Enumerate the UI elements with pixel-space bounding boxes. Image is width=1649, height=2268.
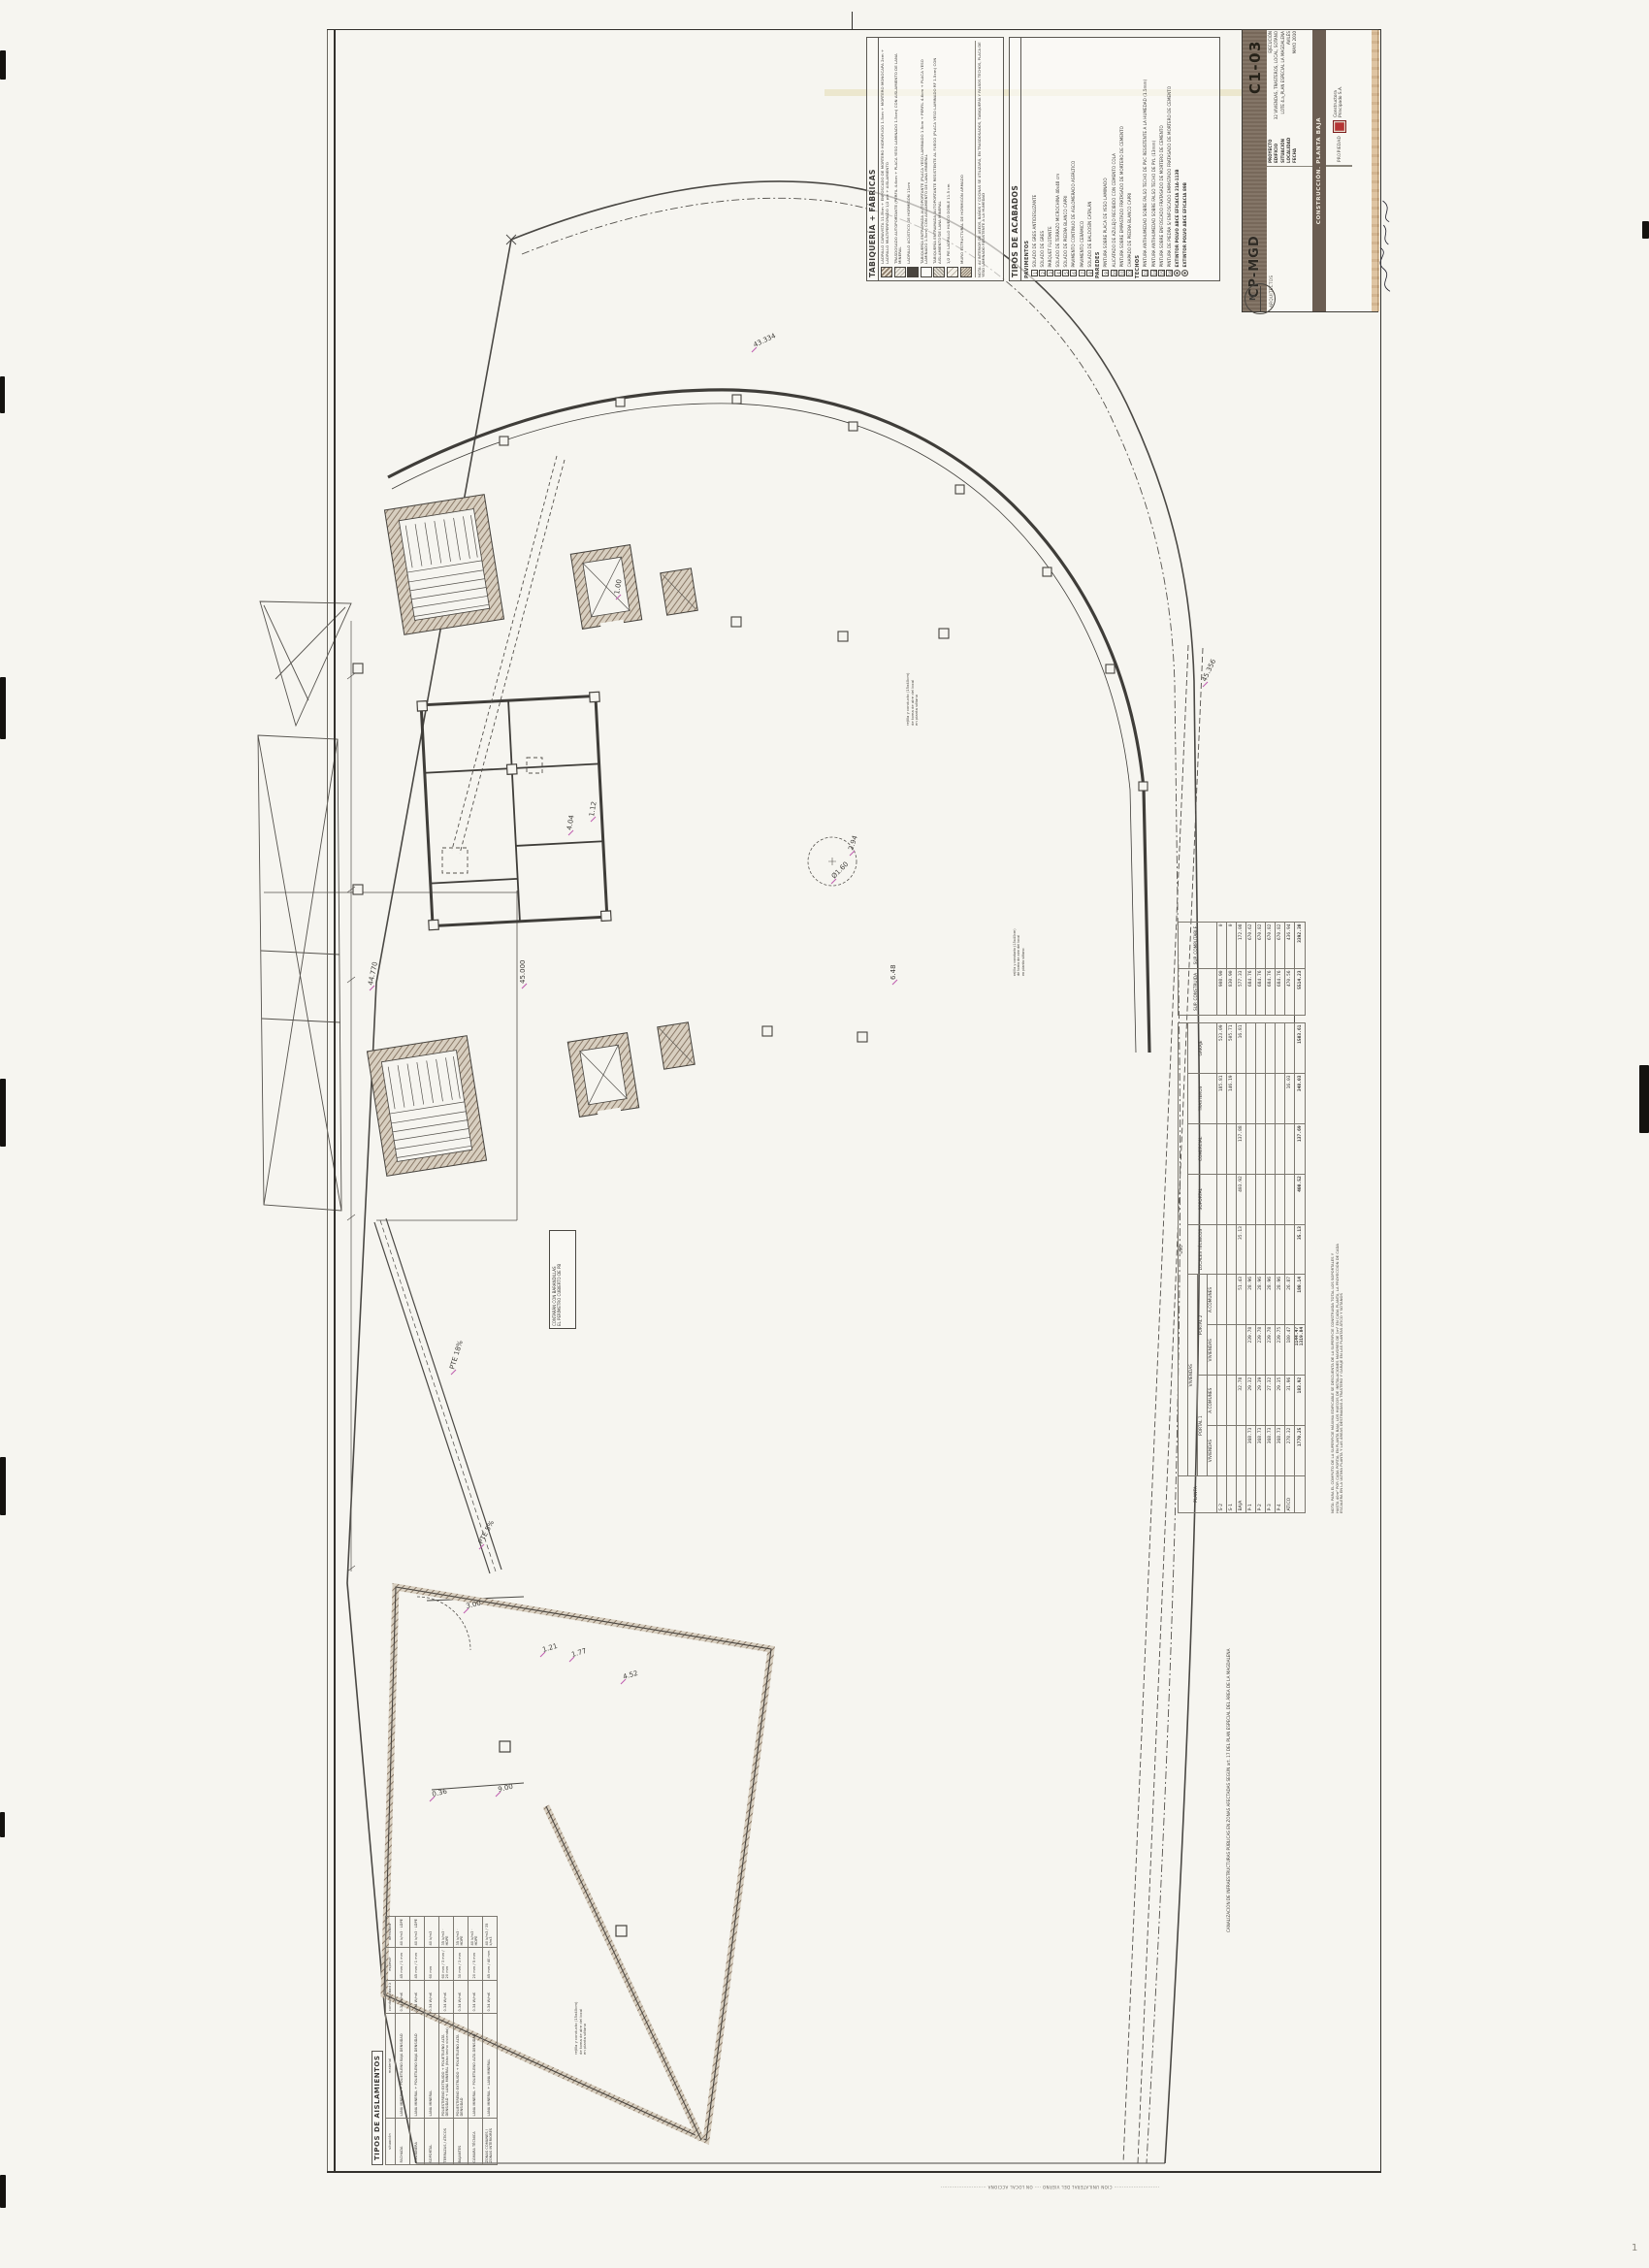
value-cell: 180.47	[1285, 1325, 1295, 1376]
finish-item: 13PINTURA ANTIHUMEDAD SOBRE FALSO TECHO …	[1142, 38, 1148, 276]
value-cell: 28.96	[1276, 1275, 1285, 1325]
value-cell: MEDIANERA	[410, 2119, 425, 2165]
comput-cell: 670.82	[1266, 923, 1276, 969]
frame-left-inner	[334, 29, 336, 2173]
finish-item: 6PAVIMENTO CONTINUO DE AGLOMERADO ASFÁLT…	[1070, 38, 1077, 276]
legend-item: LADRILLO CARAVISTA 11.5cm + ENFOSCADO DE…	[881, 41, 892, 277]
value-cell: 1503.61	[1295, 1023, 1306, 1074]
value-cell: 35 k/m3 · HDPE	[439, 1917, 454, 1948]
comput-cell: 3392.30	[1295, 923, 1306, 969]
value-cell: 45 mm / 1 mm	[396, 1948, 410, 1981]
dim-label: 45.000	[519, 960, 527, 985]
value-cell: 45 mm / 1 mm	[410, 1948, 425, 1981]
value-cell: 28.96	[1256, 1275, 1266, 1325]
finish-item-number: 12	[1126, 270, 1133, 276]
planta-cell: P-4	[1276, 1476, 1285, 1513]
legend-item: 1/2 PIE LADRILLO HUECO DOBLE 11.5 cm	[947, 41, 958, 277]
superficies-body: S-2185.81523.09908.900S-1146.19505.71830…	[1217, 923, 1306, 1513]
value-cell: 137.88	[1237, 1123, 1246, 1174]
dim-label: 2.94	[847, 834, 859, 852]
col-viviendas: VIVIENDAS	[1188, 1275, 1198, 1476]
value-cell: LANA MINERAL	[425, 2014, 439, 2119]
value-cell	[1217, 1325, 1227, 1376]
col-situacion: situación	[386, 2119, 396, 2165]
value-cell: FACHADA	[396, 2119, 410, 2165]
grille-note-2: rejilla y conducto (15x40cm) de toma de …	[1013, 922, 1026, 976]
value-cell: 40 k/m3 · HDPE	[469, 1917, 483, 1948]
legend-item-text: MURO ESTRUCTURAL DE HORMIGÓN ARMADO	[960, 175, 965, 264]
col-planta: PLANTA	[1179, 1476, 1217, 1513]
site-boundary	[347, 181, 1200, 2163]
table-row: P-3368.7327.32239.7828.96684.76670.82	[1266, 923, 1276, 1513]
value-cell	[1285, 1023, 1295, 1074]
col-uso: USO	[1179, 1023, 1188, 1476]
constr-cell: 684.76	[1246, 969, 1256, 1016]
col-sup-computable: SUP. COMPUTABLE	[1179, 923, 1217, 969]
value-cell	[1237, 1325, 1246, 1376]
finish-item: 2SOLADO DE GRES	[1039, 38, 1046, 276]
legend-item: LADRILLO ACÚSTICO DE HORMIGÓN 11cm	[907, 41, 919, 277]
finish-item-text: ALICATADO DE AZULEJO RECIBIDO CON CEMENT…	[1112, 153, 1116, 267]
table-gap	[1256, 1016, 1266, 1023]
value-cell: 30 mm / 3 mm	[454, 1948, 469, 1981]
finish-item-text: PARQUET FLOTANTE	[1048, 226, 1052, 267]
dim-label: 1.21	[541, 1642, 558, 1654]
elevator-2	[567, 1033, 639, 1119]
table-row: TERRAZAS / ÁTICOSPOLIESTIRENO EXTRUIDO +…	[439, 1917, 454, 2165]
planta-cell: ATICO	[1285, 1476, 1295, 1513]
value-cell	[1227, 1224, 1237, 1275]
value-cell: 45 mm / 40 mm	[483, 1948, 498, 1981]
col-garaje: GARAJE	[1188, 1023, 1217, 1074]
finish-item-number: 4	[1054, 270, 1061, 276]
value-cell: 40 k/m3	[425, 1917, 439, 1948]
scanned-plan-sheet: { "sheet": { "project_code": "CP-MGD", "…	[0, 0, 1649, 2268]
comput-cell: 0	[1227, 923, 1237, 969]
value-cell	[1256, 1123, 1266, 1174]
finish-item: 3PARQUET FLOTANTE	[1047, 38, 1053, 276]
finish-item-number: 15	[1158, 270, 1165, 276]
value-cell	[1285, 1123, 1295, 1174]
extinguisher-icon	[1174, 270, 1180, 276]
legend-item: TRASDOSADO AUTOPORTANTE (PERFIL 4.6cm + …	[894, 41, 906, 277]
finish-item-number: 9	[1102, 270, 1109, 276]
value-cell	[1227, 1275, 1237, 1325]
value-cell	[1227, 1426, 1237, 1476]
finish-item-number: 8	[1086, 270, 1093, 276]
vent-shaft-2	[658, 1022, 695, 1069]
hatch-swatch	[881, 267, 892, 277]
finish-item-number: 16	[1166, 270, 1173, 276]
comput-cell: 172.08	[1237, 923, 1246, 969]
value-cell	[1276, 1123, 1285, 1174]
dim-label: 45.356	[1201, 658, 1218, 683]
frame-tick	[852, 12, 853, 29]
finish-item-number: 1	[1031, 270, 1038, 276]
value-cell: 523.09	[1217, 1023, 1227, 1074]
value-cell: 29.32	[1246, 1376, 1256, 1426]
finish-item-text: PINTURA ANTIHUMEDAD SOBRE FALSO TECHO DE…	[1143, 80, 1148, 268]
value-cell: 137.69	[1295, 1123, 1306, 1174]
planta-cell: S-2	[1217, 1476, 1227, 1513]
col-portal2: PORTAL 2	[1198, 1275, 1208, 1376]
table-row: S-2185.81523.09908.900	[1217, 923, 1227, 1513]
value-cell: 278.32	[1285, 1426, 1295, 1476]
value-cell	[1256, 1074, 1266, 1124]
value-cell	[1246, 1224, 1256, 1275]
value-cell	[1237, 1426, 1246, 1476]
comput-cell: 670.62	[1246, 923, 1256, 969]
finish-item-text: PINTURA ANTIHUMEDAD SOBRE FALSO TECHO DE…	[1151, 141, 1156, 268]
planta-cell: S-1	[1227, 1476, 1237, 1513]
legend-item: TABIQUERÍA ENTRAMADA AUTOPORTANTE RESIST…	[933, 41, 945, 277]
value-cell: TERRAZAS / ÁTICOS	[439, 2119, 454, 2165]
highlight-band	[1372, 30, 1379, 311]
table-row: S-1146.19505.71830.900	[1227, 923, 1237, 1513]
technical-rooms-block	[417, 692, 611, 930]
comput-cell: 0	[1217, 923, 1227, 969]
finish-item-text: PAVIMENTO CONTINUO DE AGLOMERADO ASFÁLTI…	[1071, 161, 1076, 268]
title-block: CP-MGD C1-03 ARQUITECTOS PROYECTOEJECUCI…	[1242, 29, 1378, 312]
col-p1-comunes: A.COMUNES	[1208, 1376, 1217, 1426]
value-cell: 368.73	[1276, 1426, 1285, 1476]
col-densidad: densidad	[386, 1917, 396, 1948]
hatch-swatch	[894, 267, 906, 277]
legend-item-text: TRASDOSADO AUTOPORTANTE (PERFIL 4.6cm + …	[894, 41, 903, 264]
value-cell: ZONAS COMUNES / ZONAS INTERIORES	[483, 2119, 498, 2165]
owner-name: Constructora Principado S.A.	[1335, 86, 1344, 117]
value-cell	[1237, 1074, 1246, 1124]
value-cell: 32.78	[1237, 1376, 1246, 1426]
value-cell	[1227, 1325, 1237, 1376]
value-cell	[1217, 1426, 1227, 1476]
value-cell	[1217, 1275, 1227, 1325]
value-cell	[1276, 1224, 1285, 1275]
value-cell: 29.39	[1256, 1376, 1266, 1426]
value-cell: 239.78	[1256, 1325, 1266, 1376]
inverted-margin-note: ···························· CIÓN UNILAT…	[538, 2185, 1159, 2189]
value-cell: 348.03	[1295, 1074, 1306, 1124]
table-gap	[1285, 1016, 1295, 1023]
value-cell: 239.75	[1276, 1325, 1285, 1376]
value-cell: 0.34 W/mK	[454, 1981, 469, 2014]
vent-shaft-1	[661, 568, 697, 615]
finish-item: 4SOLADO DE TERRAZO MICROCHINA 40x40 cm	[1054, 38, 1061, 276]
dimension-chain	[347, 621, 355, 1571]
finish-item-number: 13	[1142, 270, 1148, 276]
value-cell: 1144.47 1319.84	[1295, 1325, 1306, 1376]
table-gap	[1179, 1016, 1217, 1023]
finish-item-text: CHAPADO DE PIEDRA BLANCO CAPRI	[1127, 193, 1132, 268]
extinguisher-icon	[1181, 270, 1188, 276]
elevator-1	[570, 545, 642, 632]
north-arrow: N	[1245, 283, 1276, 314]
table-gap	[1295, 1016, 1306, 1023]
constructora-logo-icon	[1333, 120, 1346, 133]
value-cell: 20 mm / 5 mm	[469, 1948, 483, 1981]
stair-core-1	[384, 495, 503, 635]
architects-cell: ARQUITECTOS	[1267, 166, 1352, 311]
dim-label: 4.04	[566, 814, 576, 830]
value-cell: 1770.25	[1295, 1426, 1306, 1476]
value-cell: CÁMARA TÉCNICA	[469, 2119, 483, 2165]
table-gap	[1246, 1016, 1256, 1023]
value-cell	[1246, 1074, 1256, 1124]
finish-item: 1SOLADO DE GRES ANTIDESLIZANTE	[1031, 38, 1038, 276]
areas-table-wrap: PLANTA USO SUP. CONSTRUIDA SUP. COMPUTAB…	[1178, 922, 1325, 1513]
value-cell	[1266, 1074, 1276, 1124]
finish-item-text: PINTURA SOBRE ENFOSCADO FRATASADO DE MOR…	[1159, 125, 1164, 267]
tabiqueria-items: LADRILLO CARAVISTA 11.5cm + ENFOSCADO DE…	[879, 38, 975, 280]
legend-tabiqueria-note: NOTA: AL INTERIOR DE ASEOS, BAÑOS Y COCI…	[975, 41, 986, 277]
left-canopy-triangle	[260, 601, 351, 726]
constr-cell: 684.76	[1266, 969, 1276, 1016]
value-cell: 16.81	[1237, 1023, 1246, 1074]
value-cell	[1217, 1174, 1227, 1224]
value-cell: 60 mm	[425, 1948, 439, 1981]
scan-artifact	[0, 50, 6, 80]
dim-label: 43.334	[752, 332, 777, 349]
table-row: P-4368.7329.35239.7528.96684.76670.82	[1276, 923, 1285, 1513]
finish-item: 7PAVIMENTO CERÁMICO	[1079, 38, 1085, 276]
value-cell	[1217, 1224, 1227, 1275]
dim-label: Ø1.60	[830, 860, 851, 881]
value-cell	[1266, 1023, 1276, 1074]
table-row: BAJANTESPOLIESTIRENO EXTRUIDO + POLIETIL…	[454, 1917, 469, 2165]
value-cell	[1227, 1376, 1237, 1426]
table-gap	[1276, 1016, 1285, 1023]
stair-core-2	[367, 1036, 486, 1177]
finish-item: 11PINTURA SOBRE EMPASTADO FRATASADO DE M…	[1118, 38, 1125, 276]
grille-note-3: rejilla y conducto (15x40cm) de toma de …	[574, 1981, 588, 2055]
floor-plan-drawing: 43.33445.35644.77045.0004.042.94Ø1.606.4…	[0, 0, 1649, 2268]
col-locales: LOCALES TÉCNICOS	[1188, 1224, 1217, 1275]
scan-artifact	[0, 1812, 5, 1837]
finish-item-text: PINTURA SOBRE PLACA DE YESO LAMINADO	[1103, 178, 1108, 267]
legend-acabados-title: TIPOS DE ACABADOS	[1010, 38, 1021, 280]
legend-tabiqueria-title: TABIQUERÍA + FÁBRICAS	[867, 38, 879, 280]
scan-artifact	[1639, 1065, 1649, 1133]
hatch-swatch	[921, 267, 932, 277]
title-band: CP-MGD C1-03	[1243, 30, 1267, 311]
value-cell: SOPORTAL	[425, 2119, 439, 2165]
table-row: 1770.25183.921144.47 1319.84180.1435.134…	[1295, 923, 1306, 1513]
superficies-table: PLANTA USO SUP. CONSTRUIDA SUP. COMPUTAB…	[1178, 922, 1306, 1513]
planta-cell	[1295, 1476, 1306, 1513]
col-trasteros: TRASTEROS	[1188, 1074, 1217, 1124]
planta-cell: BAJA	[1237, 1476, 1246, 1513]
value-cell: 28.96	[1266, 1275, 1276, 1325]
owner-label: PROPIEDAD	[1337, 136, 1342, 162]
table-gap	[1237, 1016, 1246, 1023]
value-cell: 40 k/m3 / 35 k/m3	[483, 1917, 498, 1948]
table-row: ZONAS COMUNES / ZONAS INTERIORESLANA MIN…	[483, 1917, 498, 2165]
col-soportal: SOPORTAL	[1188, 1174, 1217, 1224]
value-cell: 0.34 W/mK	[396, 1981, 410, 2014]
col-p2-viviendas: VIVIENDAS	[1208, 1325, 1217, 1376]
infrastructure-note: CANALIZACIÓN DE INFRAESTRUCTURAS PÚBLICA…	[1226, 1601, 1245, 1932]
finish-group-title: PAVIMENTOS	[1024, 38, 1030, 278]
hatch-swatch	[960, 267, 972, 277]
value-cell: 26.87	[1285, 1275, 1295, 1325]
finish-item: 14PINTURA ANTIHUMEDAD SOBRE FALSO TECHO …	[1150, 38, 1157, 276]
value-cell	[1285, 1174, 1295, 1224]
value-cell: LANA MINERAL + POLIETILENO BAJA DENSIDAD	[410, 2014, 425, 2119]
value-cell: 185.81	[1217, 1074, 1227, 1124]
value-cell: 35.13	[1237, 1224, 1246, 1275]
left-braced-strip	[258, 735, 341, 1211]
value-cell: 35.13	[1295, 1224, 1306, 1275]
table-row: P-1368.7329.32239.7828.96684.76670.62	[1246, 923, 1256, 1513]
building-wall	[388, 390, 1149, 1053]
value-cell: LANA MINERAL + LANA MINERAL	[483, 2014, 498, 2119]
value-cell: 183.92	[1295, 1376, 1306, 1426]
value-cell	[1266, 1224, 1276, 1275]
value-cell	[1227, 1123, 1237, 1174]
finish-item-text: SOLADO DE PIEDRA BLANCO CAPRI	[1063, 196, 1068, 268]
value-cell	[1256, 1023, 1266, 1074]
north-needle	[1260, 286, 1261, 311]
finish-item: 10ALICATADO DE AZULEJO RECIBIDO CON CEME…	[1111, 38, 1117, 276]
value-cell: 27.32	[1266, 1376, 1276, 1426]
scan-artifact	[0, 2175, 6, 2208]
finish-item-text: PINTURA DE PIEDRA S/ ENFOSCADO EMPASTADO…	[1167, 86, 1172, 268]
hatch-swatch	[947, 267, 958, 277]
table-row: CÁMARA TÉCNICALANA MINERAL + POLIETILENO…	[469, 1917, 483, 2165]
table-row: BAJA32.7851.4335.13403.92137.8816.81577.…	[1237, 923, 1246, 1513]
finish-item-number: 7	[1079, 270, 1085, 276]
scan-artifact	[0, 677, 6, 739]
finish-item-text: SOLADO DE GRES	[1040, 231, 1045, 268]
value-cell: 180.14	[1295, 1275, 1306, 1325]
col-sup-construida: SUP. CONSTRUIDA	[1179, 969, 1217, 1016]
legend-item-text: TABIQUERÍA ENTRAMADA AUTOPORTANTE RESIST…	[933, 41, 942, 264]
finish-item-text: SOLADO DE BALDOSÍN CATALÁN	[1087, 201, 1092, 267]
field-row: FECHAMAYO 2010	[1292, 31, 1298, 163]
dim-label: 6.48	[889, 964, 897, 980]
hatch-swatch	[907, 267, 919, 277]
railing-note: CONTARÁN CON BARANDILLAS EL PERÍMETRO CU…	[549, 1230, 576, 1329]
value-cell: 29.35	[1276, 1376, 1285, 1426]
finish-item: 8SOLADO DE BALDOSÍN CATALÁN	[1086, 38, 1093, 276]
constr-cell: 908.90	[1217, 969, 1227, 1016]
table-gap	[1217, 1016, 1227, 1023]
constr-cell: 470.56	[1285, 969, 1295, 1016]
setback-dashed-lines	[522, 198, 1203, 2163]
finish-item-number: 6	[1070, 270, 1077, 276]
finish-item-number: 10	[1111, 270, 1117, 276]
scan-artifact	[0, 1457, 6, 1515]
finish-item-text: SOLADO DE GRES ANTIDESLIZANTE	[1032, 195, 1037, 268]
finish-group-title: PAREDES	[1095, 38, 1101, 278]
value-cell: 60 mm / 3 mm / 20 mm	[439, 1948, 454, 1981]
project-fields: PROYECTOEJECUCIÓN EDIFICIO32 VIVIENDAS, …	[1267, 28, 1312, 166]
legend-item: MURO ESTRUCTURAL DE HORMIGÓN ARMADO	[960, 41, 972, 277]
value-cell	[1246, 1023, 1256, 1074]
constr-cell: 684.76	[1256, 969, 1266, 1016]
dim-label: 4.52	[622, 1669, 638, 1681]
frame-top	[327, 29, 1380, 30]
facade-columns	[353, 395, 1148, 1042]
legend-tabiqueria: TABIQUERÍA + FÁBRICAS LADRILLO CARAVISTA…	[866, 37, 1004, 281]
value-cell: 146.19	[1227, 1074, 1237, 1124]
finish-item-number: 5	[1062, 270, 1069, 276]
plano-band: CONSTRUCCIÓN. PLANTA BAJA	[1312, 30, 1326, 311]
page-number: 1	[1632, 2243, 1637, 2253]
value-cell: 40 k/m3 · LDPE	[396, 1917, 410, 1948]
legend-item-text: LADRILLO CARAVISTA 11.5cm + ENFOSCADO DE…	[881, 41, 889, 264]
hatch-swatch	[933, 267, 945, 277]
finish-item: 15PINTURA SOBRE ENFOSCADO FRATASADO DE M…	[1158, 38, 1165, 276]
finish-item: 9PINTURA SOBRE PLACA DE YESO LAMINADO	[1102, 38, 1109, 276]
north-letter: N	[1248, 294, 1257, 301]
finish-item-number: 3	[1047, 270, 1053, 276]
value-cell: 400.52	[1295, 1174, 1306, 1224]
legend-acabados: TIPOS DE ACABADOS PAVIMENTOS1SOLADO DE G…	[1009, 37, 1220, 281]
value-cell	[1246, 1174, 1256, 1224]
value-cell: POLIESTIRENO EXTRUIDO + POLIETILENO ALTA…	[439, 2014, 454, 2119]
aislamientos-body: FACHADALANA MINERAL + POLIETILENO BAJA D…	[396, 1917, 498, 2165]
value-cell: 0.34 W/mK	[469, 1981, 483, 2014]
value-cell: 239.78	[1266, 1325, 1276, 1376]
garage-ramp	[374, 1218, 524, 1790]
legend-item-text: TABIQUERÍA ENTRAMADA AUTOPORTANTE (PLACA…	[921, 41, 929, 264]
constr-cell: 577.33	[1237, 969, 1246, 1016]
finish-item-number: 14	[1150, 270, 1157, 276]
value-cell: BAJANTES	[454, 2119, 469, 2165]
value-cell	[1227, 1174, 1237, 1224]
grille-note-1: rejilla y conducto (15x40cm) de toma de …	[906, 652, 920, 726]
value-cell: POLIESTIRENO EXTRUIDO + POLIETILENO ALTA…	[454, 2014, 469, 2119]
field-value: MAYO 2010	[1292, 31, 1298, 53]
value-cell	[1256, 1174, 1266, 1224]
finish-item: 16PINTURA DE PIEDRA S/ ENFOSCADO EMPASTA…	[1166, 38, 1173, 276]
table-row: SOPORTALLANA MINERAL0.34 W/mK60 mm40 k/m…	[425, 1917, 439, 2165]
legend-item-text: 1/2 PIE LADRILLO HUECO DOBLE 11.5 cm	[947, 184, 952, 264]
value-cell: 368.73	[1246, 1426, 1256, 1476]
planta-cell: P-3	[1266, 1476, 1276, 1513]
table-row: ATICO278.3231.96180.4726.8716.03470.5643…	[1285, 923, 1295, 1513]
value-cell: 0.34 W/mK	[410, 1981, 425, 2014]
extinguisher-item: EXTINTOR POLVO ABCE EFICACIA 89B	[1181, 38, 1188, 276]
extinguisher-text: EXTINTOR POLVO ABCE EFICACIA 21A-113B	[1175, 169, 1180, 267]
finish-item: 12CHAPADO DE PIEDRA BLANCO CAPRI	[1126, 38, 1133, 276]
extinguisher-text: EXTINTOR POLVO ABCE EFICACIA 89B	[1182, 182, 1187, 267]
legend-item-text: LADRILLO ACÚSTICO DE HORMIGÓN 11cm	[907, 182, 912, 264]
insulation-table-wrap: TIPOS DE AISLAMIENTOS situación material…	[365, 1917, 506, 2165]
finish-item-text: PAVIMENTO CERÁMICO	[1080, 221, 1084, 268]
value-cell	[1276, 1074, 1285, 1124]
comput-cell: 436.94	[1285, 923, 1295, 969]
table-gap	[1266, 1016, 1276, 1023]
constr-cell: 5514.23	[1295, 969, 1306, 1016]
value-cell	[1256, 1224, 1266, 1275]
value-cell: 0.34 W/mK	[439, 1981, 454, 2014]
value-cell: 35 k/m3 · HDPE	[454, 1917, 469, 1948]
constr-cell: 830.90	[1227, 969, 1237, 1016]
value-cell: LANA MINERAL + POLIETILENO BAJA DENSIDAD	[396, 2014, 410, 2119]
acabados-groups: PAVIMENTOS1SOLADO DE GRES ANTIDESLIZANTE…	[1024, 38, 1189, 280]
dim-label: 1.12	[588, 801, 598, 818]
finish-group-title: TECHOS	[1135, 38, 1141, 278]
finish-item-number: 2	[1039, 270, 1046, 276]
col-espesor: espesor	[386, 1948, 396, 1981]
value-cell: 505.71	[1227, 1023, 1237, 1074]
value-cell: 0.34 W/mK	[425, 1981, 439, 2014]
value-cell	[1246, 1123, 1256, 1174]
dim-label: 1.77	[570, 1647, 587, 1659]
value-cell: 51.43	[1237, 1275, 1246, 1325]
